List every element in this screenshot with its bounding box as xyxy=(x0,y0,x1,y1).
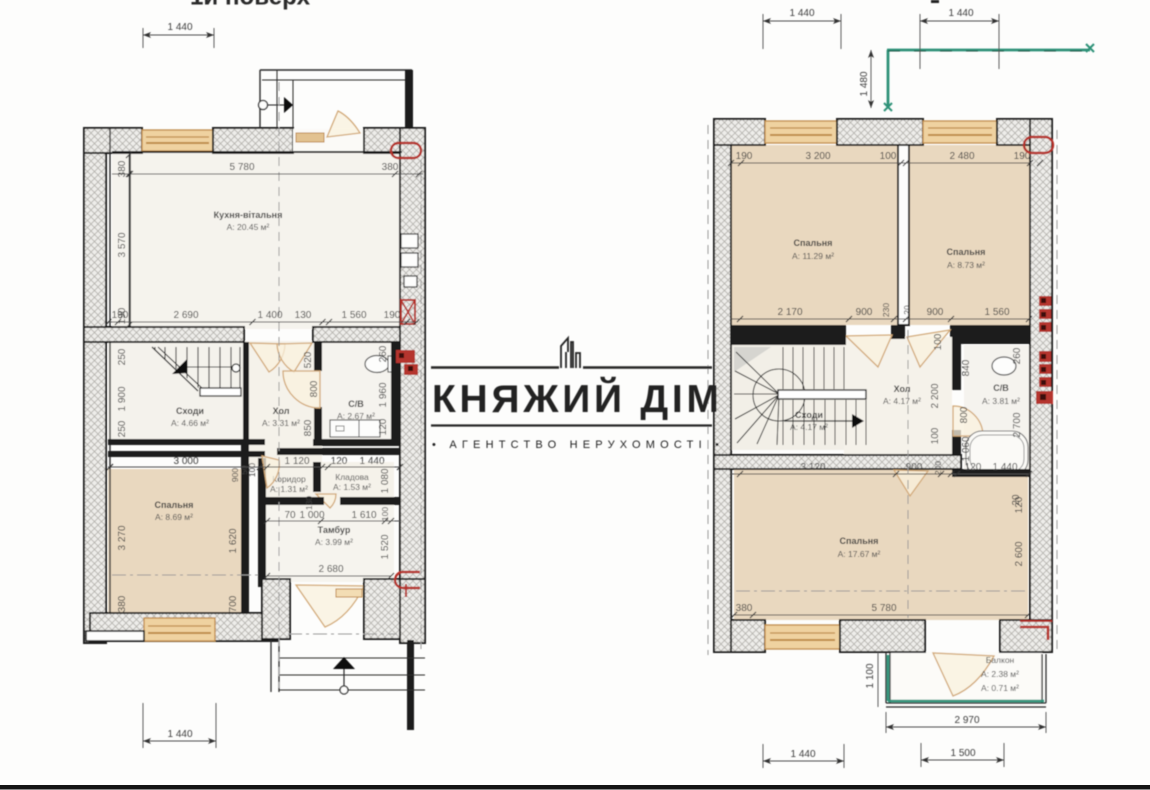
svg-text:260: 260 xyxy=(1012,347,1023,364)
svg-text:Тамбур: Тамбур xyxy=(318,525,351,535)
svg-text:1 560: 1 560 xyxy=(984,307,1009,318)
svg-text:3 200: 3 200 xyxy=(805,151,830,162)
svg-text:А: 2.38 м²: А: 2.38 м² xyxy=(981,669,1019,679)
svg-text:120: 120 xyxy=(378,418,389,435)
svg-text:1 440: 1 440 xyxy=(167,729,192,740)
svg-text:Спальня: Спальня xyxy=(947,247,986,257)
svg-text:2 170: 2 170 xyxy=(777,307,802,318)
svg-text:С/В: С/В xyxy=(993,383,1009,393)
svg-text:1 080: 1 080 xyxy=(380,468,391,493)
svg-text:2 700: 2 700 xyxy=(1012,412,1023,437)
svg-text:3 270: 3 270 xyxy=(117,525,128,550)
svg-text:1й поверх: 1й поверх xyxy=(190,0,310,11)
svg-text:5 780: 5 780 xyxy=(871,603,896,614)
svg-text:1 440: 1 440 xyxy=(790,749,815,760)
svg-text:800: 800 xyxy=(309,380,320,397)
svg-text:А: 3.81 м²: А: 3.81 м² xyxy=(982,396,1020,406)
svg-text:250: 250 xyxy=(117,420,128,437)
svg-text:100: 100 xyxy=(380,507,390,521)
svg-text:А: 2.67 м²: А: 2.67 м² xyxy=(337,411,375,421)
svg-text:120: 120 xyxy=(965,462,982,473)
svg-text:1 440: 1 440 xyxy=(992,462,1017,473)
svg-text:2 680: 2 680 xyxy=(318,564,343,575)
svg-text:120: 120 xyxy=(1014,496,1025,513)
svg-text:700: 700 xyxy=(228,595,239,612)
svg-text:2 200: 2 200 xyxy=(930,383,941,408)
svg-text:100: 100 xyxy=(880,151,897,162)
svg-text:А: 8.69 м²: А: 8.69 м² xyxy=(155,512,193,522)
svg-text:А: 4.17 м²: А: 4.17 м² xyxy=(790,422,828,432)
svg-text:А: 1.31 м²: А: 1.31 м² xyxy=(270,484,308,494)
svg-text:850: 850 xyxy=(303,419,314,436)
svg-text:Кладова: Кладова xyxy=(335,472,369,482)
svg-text:1 480: 1 480 xyxy=(859,71,870,96)
svg-text:Балкон: Балкон xyxy=(986,655,1015,665)
svg-text:100: 100 xyxy=(930,427,941,444)
svg-text:380: 380 xyxy=(117,160,128,177)
svg-text:1 900: 1 900 xyxy=(117,386,128,411)
svg-text:• АГЕНТСТВО НЕРУХОМОСТІ •: • АГЕНТСТВО НЕРУХОМОСТІ • xyxy=(432,439,719,451)
svg-text:А: 3.31 м²: А: 3.31 м² xyxy=(262,418,300,428)
svg-text:230: 230 xyxy=(881,303,891,317)
svg-text:1 440: 1 440 xyxy=(789,8,814,19)
svg-text:Сходи: Сходи xyxy=(176,406,204,416)
svg-text:А: 4.66 м²: А: 4.66 м² xyxy=(171,418,209,428)
svg-text:1 440: 1 440 xyxy=(167,22,192,33)
svg-text:260: 260 xyxy=(378,345,389,362)
svg-text:900: 900 xyxy=(927,307,944,318)
svg-text:1 100: 1 100 xyxy=(865,663,876,688)
svg-text:А: 0.71 м²: А: 0.71 м² xyxy=(981,683,1019,693)
svg-text:2 600: 2 600 xyxy=(1014,541,1025,566)
svg-text:Спальня: Спальня xyxy=(155,500,194,510)
svg-text:1 520: 1 520 xyxy=(380,534,391,559)
svg-text:130: 130 xyxy=(304,496,314,510)
svg-text:1 120: 1 120 xyxy=(284,456,309,467)
svg-text:20: 20 xyxy=(902,305,912,315)
svg-text:3 570: 3 570 xyxy=(117,232,128,257)
svg-text:250: 250 xyxy=(117,348,128,365)
svg-text:А: 1.53 м²: А: 1.53 м² xyxy=(333,482,371,492)
svg-text:800: 800 xyxy=(959,406,970,423)
svg-text:1 960: 1 960 xyxy=(378,382,389,407)
svg-text:С/В: С/В xyxy=(348,399,364,409)
svg-text:Хол: Хол xyxy=(273,406,290,416)
svg-text:Спальня: Спальня xyxy=(794,238,833,248)
svg-text:КНЯЖИЙ ДІМ: КНЯЖИЙ ДІМ xyxy=(432,376,719,421)
svg-text:А: 11.29 м²: А: 11.29 м² xyxy=(792,251,834,261)
svg-text:900: 900 xyxy=(856,307,873,318)
svg-text:1 610: 1 610 xyxy=(351,510,376,521)
svg-text:520: 520 xyxy=(303,351,314,368)
svg-text:А: 3.99 м²: А: 3.99 м² xyxy=(315,537,353,547)
svg-text:1 500: 1 500 xyxy=(950,748,975,759)
svg-text:1 440: 1 440 xyxy=(948,8,973,19)
svg-text:190: 190 xyxy=(384,310,401,321)
svg-text:1 620: 1 620 xyxy=(228,528,239,553)
svg-text:2 690: 2 690 xyxy=(173,310,198,321)
svg-text:Кухня-вітальня: Кухня-вітальня xyxy=(214,210,283,220)
svg-text:5 780: 5 780 xyxy=(229,162,254,173)
svg-text:100: 100 xyxy=(247,463,257,477)
svg-text:3 000: 3 000 xyxy=(173,456,198,467)
svg-text:70: 70 xyxy=(284,510,296,521)
svg-text:130: 130 xyxy=(295,310,312,321)
svg-text:380: 380 xyxy=(382,162,399,173)
svg-text:2 970: 2 970 xyxy=(954,715,979,726)
svg-text:А: 4.17 м²: А: 4.17 м² xyxy=(883,396,921,406)
svg-text:1 560: 1 560 xyxy=(341,310,366,321)
svg-text:840: 840 xyxy=(961,359,972,376)
svg-text:120: 120 xyxy=(331,456,348,467)
svg-text:1 400: 1 400 xyxy=(257,310,282,321)
svg-text:380: 380 xyxy=(736,603,753,614)
svg-text:Спальня: Спальня xyxy=(840,536,879,546)
svg-text:А: 17.67 м²: А: 17.67 м² xyxy=(838,549,881,559)
svg-text:А: 8.73 м²: А: 8.73 м² xyxy=(947,260,985,270)
svg-text:1 060: 1 060 xyxy=(961,436,972,461)
svg-text:Сходи: Сходи xyxy=(795,410,823,420)
svg-text:100: 100 xyxy=(933,333,944,350)
svg-text:А: 20.45 м²: А: 20.45 м² xyxy=(227,222,270,232)
svg-text:380: 380 xyxy=(117,595,128,612)
svg-text:1 000: 1 000 xyxy=(299,510,324,521)
svg-text:1 440: 1 440 xyxy=(359,456,384,467)
svg-text:2 480: 2 480 xyxy=(949,151,974,162)
svg-text:3 120: 3 120 xyxy=(800,462,825,473)
